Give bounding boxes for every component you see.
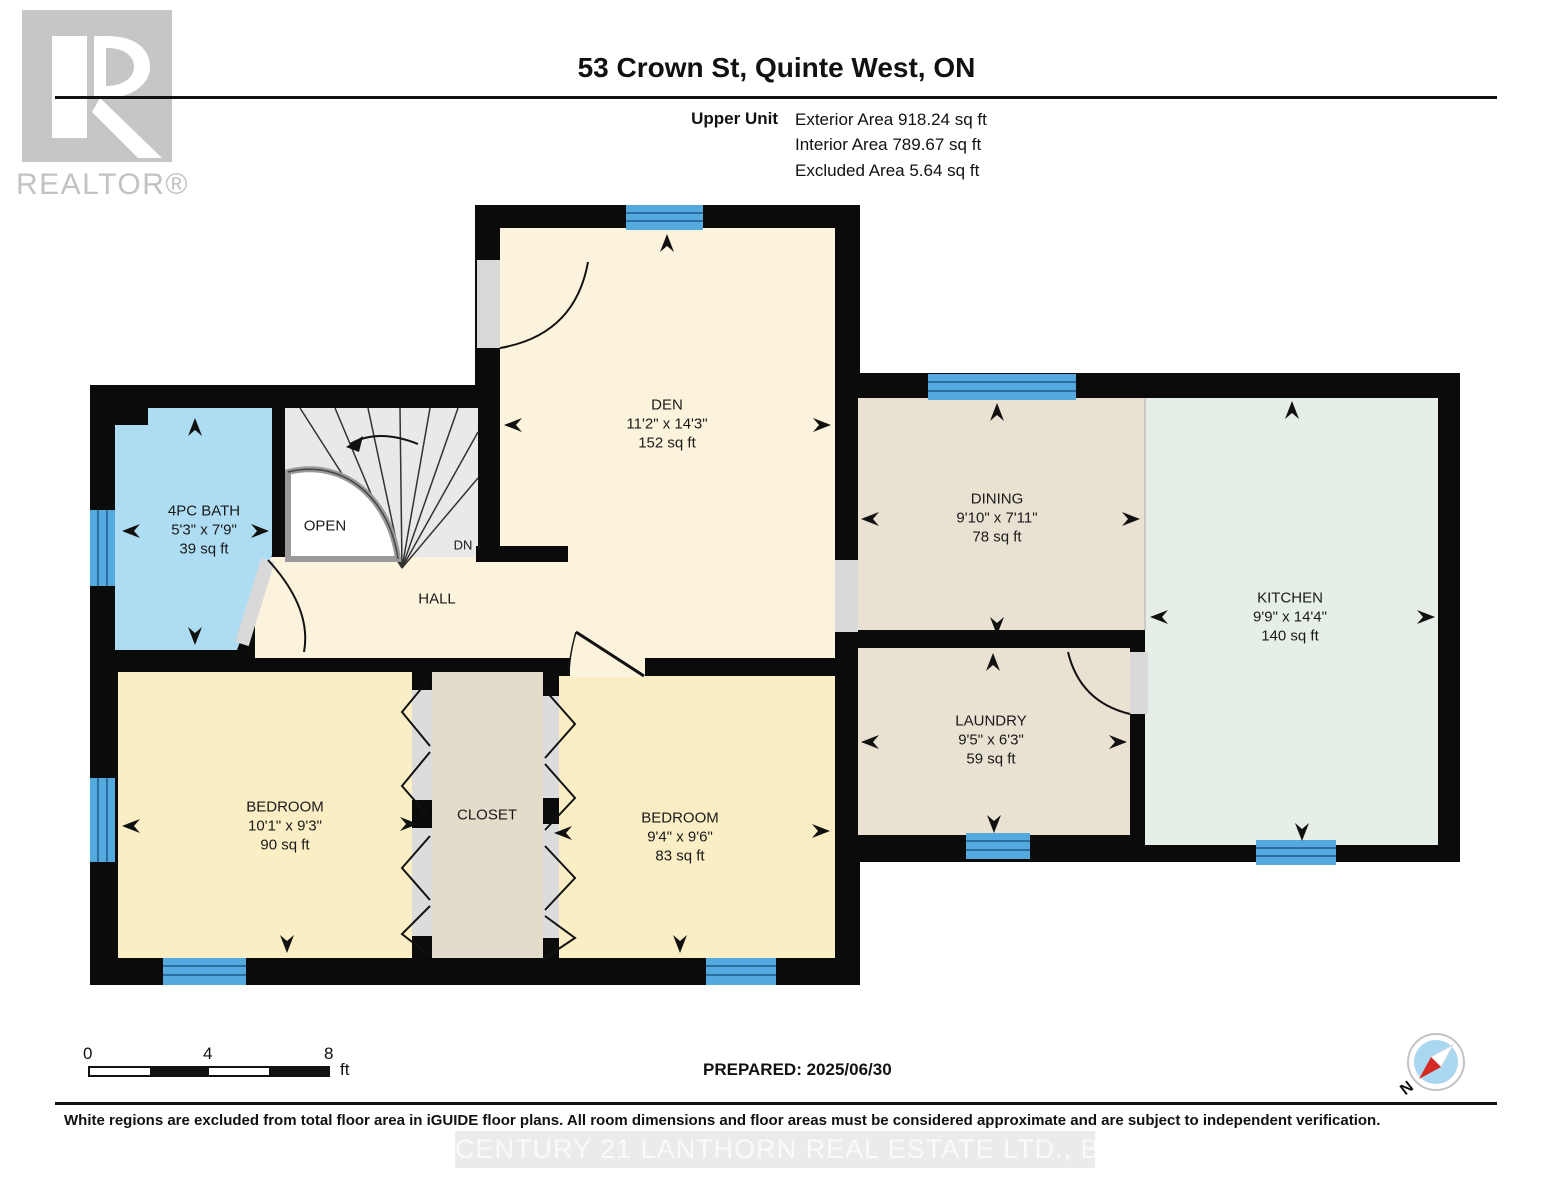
room-label-den: DEN 11'2" x 14'3" 152 sq ft [626, 396, 707, 453]
closet-wall-stub [543, 676, 559, 696]
window-bedroom-left-bottom [163, 958, 246, 985]
room-area: 78 sq ft [956, 528, 1037, 547]
scale-bar-segment [90, 1068, 150, 1075]
room-dims: 9'5" x 6'3" [955, 731, 1026, 750]
scale-bar [88, 1066, 330, 1077]
room-area: 83 sq ft [641, 847, 719, 866]
window-den-top [626, 205, 703, 230]
room-dims: 9'4" x 9'6" [641, 828, 719, 847]
room-label-laundry: LAUNDRY 9'5" x 6'3" 59 sq ft [955, 712, 1026, 769]
window-pane [706, 958, 776, 985]
room-area: 90 sq ft [246, 836, 324, 855]
closet-wall-stub [543, 798, 559, 824]
room-dims: 10'1" x 9'3" [246, 817, 324, 836]
window-pane [928, 374, 1076, 400]
door-den-panel [477, 260, 500, 348]
room-label-dining: DINING 9'10" x 7'11" 78 sq ft [956, 490, 1037, 547]
hall-dining-opening [835, 560, 858, 632]
footer-divider [55, 1102, 1497, 1105]
scale-bar-segment [150, 1068, 210, 1075]
room-area: 59 sq ft [955, 750, 1026, 769]
window-pane [966, 833, 1030, 859]
label-open: OPEN [304, 518, 347, 535]
room-name: BEDROOM [246, 798, 324, 817]
window-pane [163, 958, 246, 985]
room-label-hall: HALL [418, 591, 456, 608]
disclaimer-text: White regions are excluded from total fl… [64, 1112, 1380, 1129]
room-area: 39 sq ft [168, 540, 240, 559]
scale-tick-0: 0 [83, 1044, 92, 1064]
prepared-date: PREPARED: 2025/06/30 [703, 1060, 892, 1080]
room-label-bedroom-left: BEDROOM 10'1" x 9'3" 90 sq ft [246, 798, 324, 855]
room-name: 4PC BATH [168, 502, 240, 521]
window-bath-left [90, 510, 115, 586]
window-pane [90, 778, 115, 862]
scale-tick-8: 8 [324, 1044, 333, 1064]
window-pane [90, 510, 115, 586]
door-laundry-kitchen-gap [1130, 652, 1148, 714]
room-dims: 9'10" x 7'11" [956, 509, 1037, 528]
room-name: DINING [956, 490, 1037, 509]
interior-area: Interior Area 789.67 sq ft [795, 135, 981, 155]
wall-den-hall-stub [476, 546, 568, 562]
room-label-kitchen: KITCHEN 9'9" x 14'4" 140 sq ft [1253, 589, 1327, 646]
scale-tick-4: 4 [203, 1044, 212, 1064]
room-dims: 11'2" x 14'3" [626, 415, 707, 434]
floor-plan-page: REALTOR® 53 Crown St, Quinte West, ON Up… [0, 0, 1553, 1200]
label-dn: DN [454, 538, 473, 553]
window-bedroom-left-side [90, 778, 115, 862]
page-title: 53 Crown St, Quinte West, ON [0, 52, 1553, 84]
window-kitchen-bottom [1256, 840, 1336, 865]
room-name: LAUNDRY [955, 712, 1026, 731]
unit-label: Upper Unit [560, 109, 778, 129]
room-name: BEDROOM [641, 809, 719, 828]
excluded-area: Excluded Area 5.64 sq ft [795, 161, 979, 181]
brokerage-watermark: CENTURY 21 LANTHORN REAL ESTATE LTD., Br… [455, 1131, 1095, 1168]
window-pane [626, 205, 703, 230]
room-label-closet: CLOSET [457, 807, 517, 824]
scale-bar-segment [269, 1068, 329, 1075]
hall-bedroom-right-opening [570, 658, 645, 677]
room-label-bath: 4PC BATH 5'3" x 7'9" 39 sq ft [168, 502, 240, 559]
scale-unit: ft [340, 1060, 349, 1080]
header-divider [55, 96, 1497, 99]
window-bedroom-right-bottom [706, 958, 776, 985]
room-area: 140 sq ft [1253, 627, 1327, 646]
room-dims: 9'9" x 14'4" [1253, 608, 1327, 627]
room-name: KITCHEN [1253, 589, 1327, 608]
compass-north-label: N [1397, 1078, 1417, 1099]
window-pane [1256, 840, 1336, 865]
exterior-area: Exterior Area 918.24 sq ft [795, 110, 987, 130]
room-label-bedroom-right: BEDROOM 9'4" x 9'6" 83 sq ft [641, 809, 719, 866]
window-dining-top [928, 374, 1076, 400]
scale-bar-segment [209, 1068, 269, 1075]
room-name: DEN [626, 396, 707, 415]
room-dims: 5'3" x 7'9" [168, 521, 240, 540]
compass: N [1396, 1028, 1472, 1104]
window-laundry-bottom [966, 833, 1030, 859]
room-area: 152 sq ft [626, 434, 707, 453]
